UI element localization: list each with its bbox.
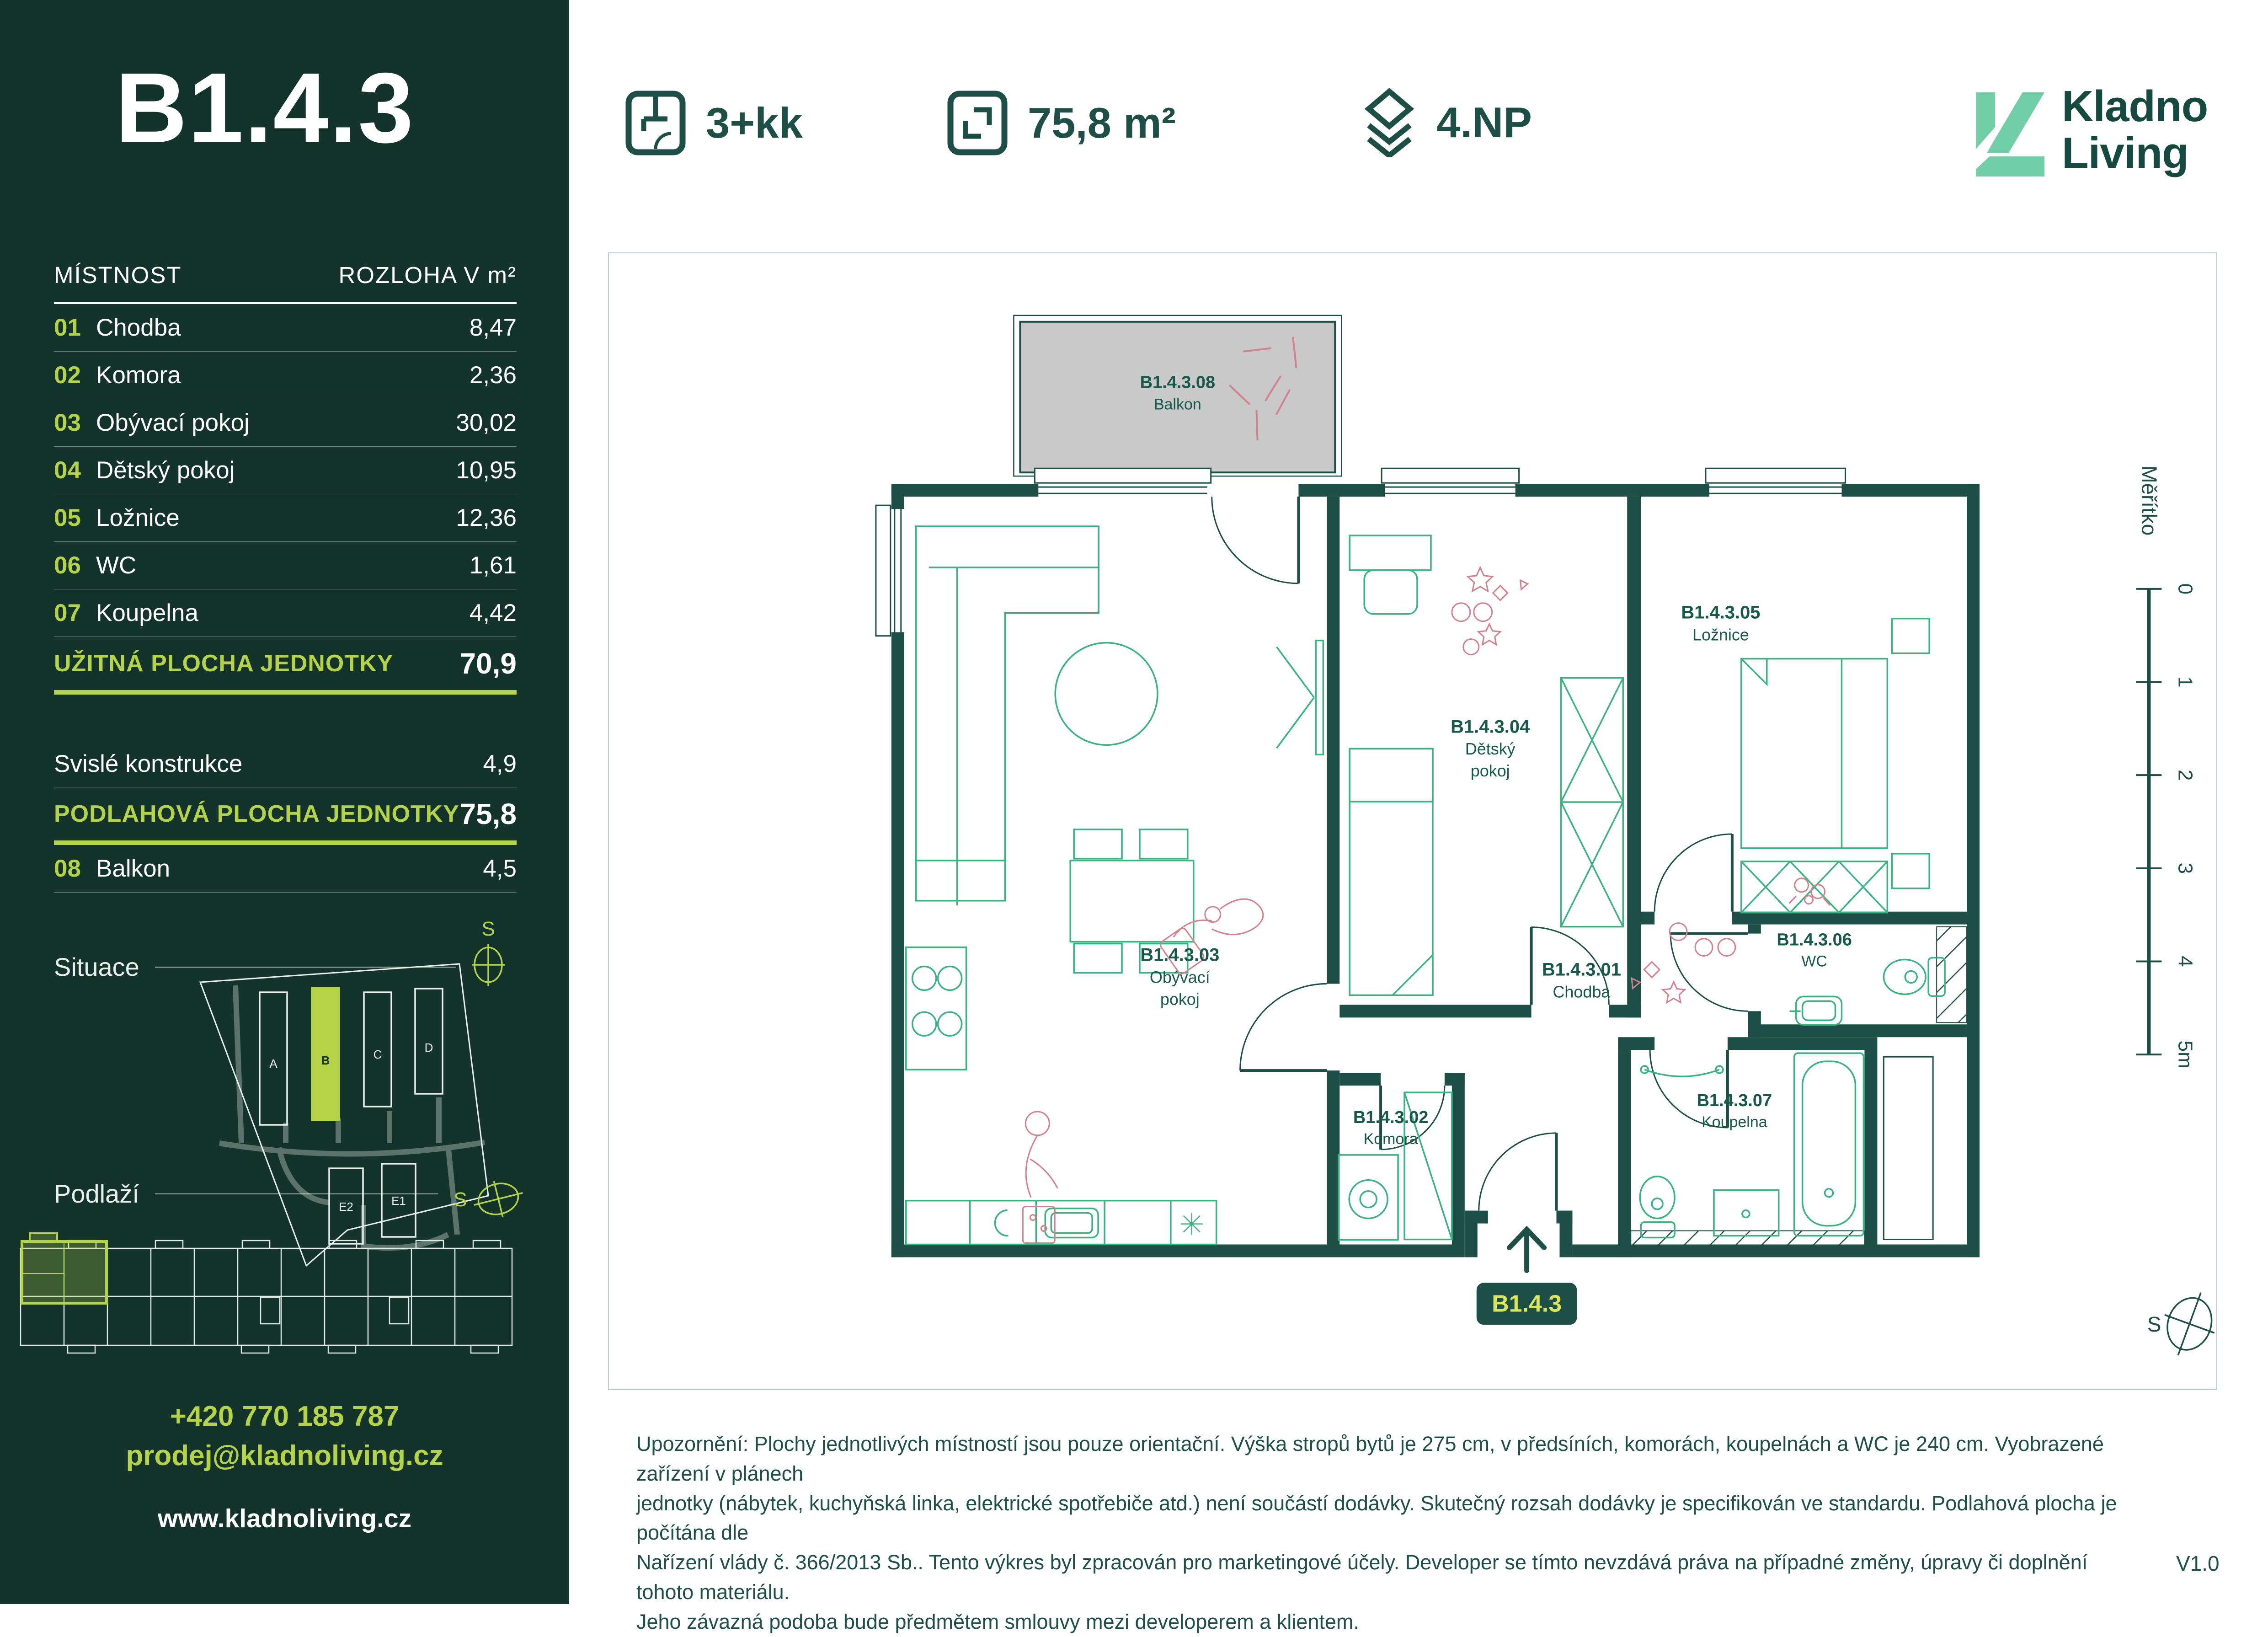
svg-text:C: C: [374, 1048, 382, 1061]
room-label-loznice-code: B1.4.3.05: [1681, 603, 1760, 623]
scale-ruler: Měřítko 0 1 2 3 4 5m: [2136, 465, 2196, 1068]
floor-badge: 4.NP: [1362, 88, 1532, 157]
row-name: Balkon: [96, 855, 483, 883]
area-badge: 75,8 m²: [947, 91, 1176, 155]
floor-value: 4.NP: [1436, 98, 1532, 147]
floorplan-sheet: { "colors": { "sidebar_bg": "#14332b", "…: [0, 0, 2268, 1604]
room-label-detsky-name2: pokoj: [1471, 761, 1510, 780]
room-label-wc-code: B1.4.3.06: [1777, 931, 1852, 950]
plan-compass: S: [2147, 1284, 2216, 1364]
sofa: [916, 526, 1099, 905]
room-table: MÍSTNOST ROZLOHA V m² 01Chodba8,47 02Kom…: [54, 262, 517, 893]
usable-value: 70,9: [459, 647, 517, 680]
row-area: 2,36: [470, 361, 517, 389]
room-label-obyvaci-name1: Obývací: [1150, 968, 1210, 986]
bedroom-furniture: [1741, 619, 1929, 913]
contact-phone: +420 770 185 787: [0, 1400, 569, 1433]
entrance-arrow-icon: [1510, 1230, 1544, 1271]
balcony-row: 08 Balkon 4,5: [54, 845, 517, 893]
table-row: 02Komora2,36: [54, 352, 517, 399]
kitchen-figure: [1023, 1112, 1057, 1243]
row-area: 12,36: [456, 504, 517, 532]
row-name: Koupelna: [96, 599, 470, 627]
row-name: Komora: [96, 361, 470, 389]
disposition-badge: 3+kk: [625, 91, 803, 155]
room-table-header: MÍSTNOST ROZLOHA V m²: [54, 262, 517, 304]
compass-letter: S: [2147, 1312, 2161, 1336]
room-label-loznice-name: Ložnice: [1692, 626, 1749, 644]
compass-icon: [2153, 1284, 2216, 1364]
floor-overview-map: [14, 1228, 521, 1370]
row-area: 1,61: [470, 551, 517, 579]
table-row: 05Ložnice12,36: [54, 494, 517, 542]
logo-line1: Kladno: [2062, 83, 2208, 130]
room-label-koupelna-code: B1.4.3.07: [1697, 1091, 1772, 1110]
row-num: 06: [54, 551, 96, 579]
compass-letter: S: [454, 1188, 467, 1211]
svg-text:5m: 5m: [2174, 1041, 2196, 1069]
entrance-badge-label: B1.4.3: [1492, 1290, 1562, 1317]
sidebar: B1.4.3 MÍSTNOST ROZLOHA V m² 01Chodba8,4…: [0, 0, 569, 1604]
highlighted-unit: [22, 1233, 107, 1303]
row-num: 02: [54, 361, 96, 389]
vertical-value: 4,9: [483, 750, 517, 778]
room-label-komora-name: Komora: [1364, 1130, 1418, 1148]
room-label-wc-name: WC: [1801, 952, 1827, 970]
table-row: 01Chodba8,47: [54, 304, 517, 352]
row-name: WC: [96, 551, 470, 579]
room-label-detsky-name1: Dětský: [1465, 739, 1516, 758]
page-title: B1.4.3: [115, 59, 414, 158]
room-label-obyvaci-code: B1.4.3.03: [1140, 945, 1219, 965]
row-name: Ložnice: [96, 504, 456, 532]
divider: [155, 1193, 438, 1194]
area-icon: [947, 91, 1008, 155]
vertical-label: Svislé konstrukce: [54, 750, 242, 778]
contact-email: prodej@kladnoliving.cz: [0, 1439, 569, 1472]
floorplan-drawing: B1.4.3.08 Balkon B1.4.3.03 Obývací pokoj…: [609, 253, 2216, 1389]
svg-text:A: A: [269, 1057, 277, 1070]
header-room: MÍSTNOST: [54, 262, 182, 289]
scale-tick-labels: 0 1 2 3 4 5m: [2174, 583, 2196, 1069]
svg-text:1: 1: [2174, 676, 2196, 687]
floor-area-row: PODLAHOVÁ PLOCHA JEDNOTKY 75,8: [54, 787, 517, 845]
row-num: 08: [54, 855, 96, 883]
table-row: 04Dětský pokoj10,95: [54, 447, 517, 494]
room-label-komora-code: B1.4.3.02: [1353, 1108, 1428, 1127]
plan-frame: B1.4.3.08 Balkon B1.4.3.03 Obývací pokoj…: [608, 252, 2217, 1390]
disclaimer-line: jednotky (nábytek, kuchyňská linka, elek…: [636, 1489, 2118, 1548]
contact-website: www.kladnoliving.cz: [0, 1503, 569, 1534]
site-boundary: [200, 964, 488, 1266]
walls: [891, 484, 1980, 1257]
podlazi-label: Podlaží: [54, 1179, 139, 1209]
logo-line2: Living: [2062, 130, 2208, 177]
logo-text: Kladno Living: [2062, 83, 2208, 177]
podlazi-section-title: Podlaží: [54, 1179, 438, 1209]
usable-label: UŽITNÁ PLOCHA JEDNOTKY: [54, 650, 393, 677]
row-num: 04: [54, 456, 96, 484]
table-row: 03Obývací pokoj30,02: [54, 399, 517, 447]
compass-icon: [470, 1175, 527, 1223]
podlazi-compass: S: [450, 1171, 528, 1225]
row-num: 07: [54, 599, 96, 627]
tv: [1276, 641, 1323, 755]
row-area: 4,5: [483, 855, 517, 883]
scale-label: Měřítko: [2137, 465, 2161, 535]
bathroom-fixtures: [1640, 1053, 1863, 1237]
row-name: Dětský pokoj: [96, 456, 456, 484]
furniture: [906, 526, 1945, 1244]
usable-area-row: UŽITNÁ PLOCHA JEDNOTKY 70,9: [54, 637, 517, 695]
disposition-value: 3+kk: [706, 98, 803, 148]
row-num: 01: [54, 314, 96, 342]
table-row: 06WC1,61: [54, 542, 517, 589]
disclaimer-line: Jeho závazná podoba bude předmětem smlou…: [636, 1607, 2118, 1637]
svg-text:2: 2: [2174, 770, 2196, 781]
disclaimer-line: Nařízení vlády č. 366/2013 Sb.. Tento vý…: [636, 1548, 2118, 1607]
row-area: 8,47: [470, 314, 517, 342]
disclaimer-line: Upozornění: Plochy jednotlivých místnost…: [636, 1429, 2118, 1489]
room-label-balkon-name: Balkon: [1154, 396, 1201, 413]
kids-decor: [1452, 567, 1528, 655]
vertical-structures-row: Svislé konstrukce 4,9: [54, 740, 517, 787]
row-num: 05: [54, 504, 96, 532]
row-area: 30,02: [456, 409, 517, 437]
row-name: Obývací pokoj: [96, 409, 456, 437]
version-label: V1.0: [2176, 1551, 2220, 1576]
layers-icon: [1362, 88, 1416, 157]
round-rug: [1055, 643, 1158, 745]
room-labels: B1.4.3.08 Balkon B1.4.3.03 Obývací pokoj…: [1140, 373, 1852, 1148]
room-label-koupelna-name: Koupelna: [1702, 1113, 1767, 1131]
header-area: ROZLOHA V m²: [338, 262, 517, 289]
floor-area-label: PODLAHOVÁ PLOCHA JEDNOTKY: [54, 800, 459, 828]
compass-letter: S: [481, 918, 495, 940]
table-row: 07Koupelna4,42: [54, 589, 517, 637]
svg-text:B: B: [321, 1054, 330, 1067]
svg-text:0: 0: [2174, 583, 2196, 594]
floorplan-icon: [625, 91, 686, 155]
row-area: 10,95: [456, 456, 517, 484]
room-label-balkon-code: B1.4.3.08: [1140, 373, 1215, 392]
kladno-living-logo: Kladno Living: [1976, 83, 2208, 180]
hall-decor: [1632, 923, 1735, 1003]
room-label-chodba-code: B1.4.3.01: [1542, 959, 1621, 979]
row-name: Chodba: [96, 314, 470, 342]
room-label-chodba-name: Chodba: [1553, 982, 1610, 1001]
area-value: 75,8 m²: [1028, 98, 1176, 148]
row-area: 4,42: [470, 599, 517, 627]
row-num: 03: [54, 409, 96, 437]
svg-text:D: D: [425, 1041, 433, 1054]
room-label-obyvaci-name2: pokoj: [1160, 990, 1200, 1008]
disclaimer-text: Upozornění: Plochy jednotlivých místnost…: [636, 1429, 2118, 1637]
svg-text:3: 3: [2174, 863, 2196, 874]
floor-area-value: 75,8: [459, 797, 517, 831]
room-label-detsky-code: B1.4.3.04: [1451, 717, 1530, 737]
svg-text:4: 4: [2174, 956, 2196, 967]
logo-mark-icon: [1976, 83, 2045, 180]
situace-label: Situace: [54, 952, 139, 982]
decor-pink: [1023, 567, 1830, 1243]
